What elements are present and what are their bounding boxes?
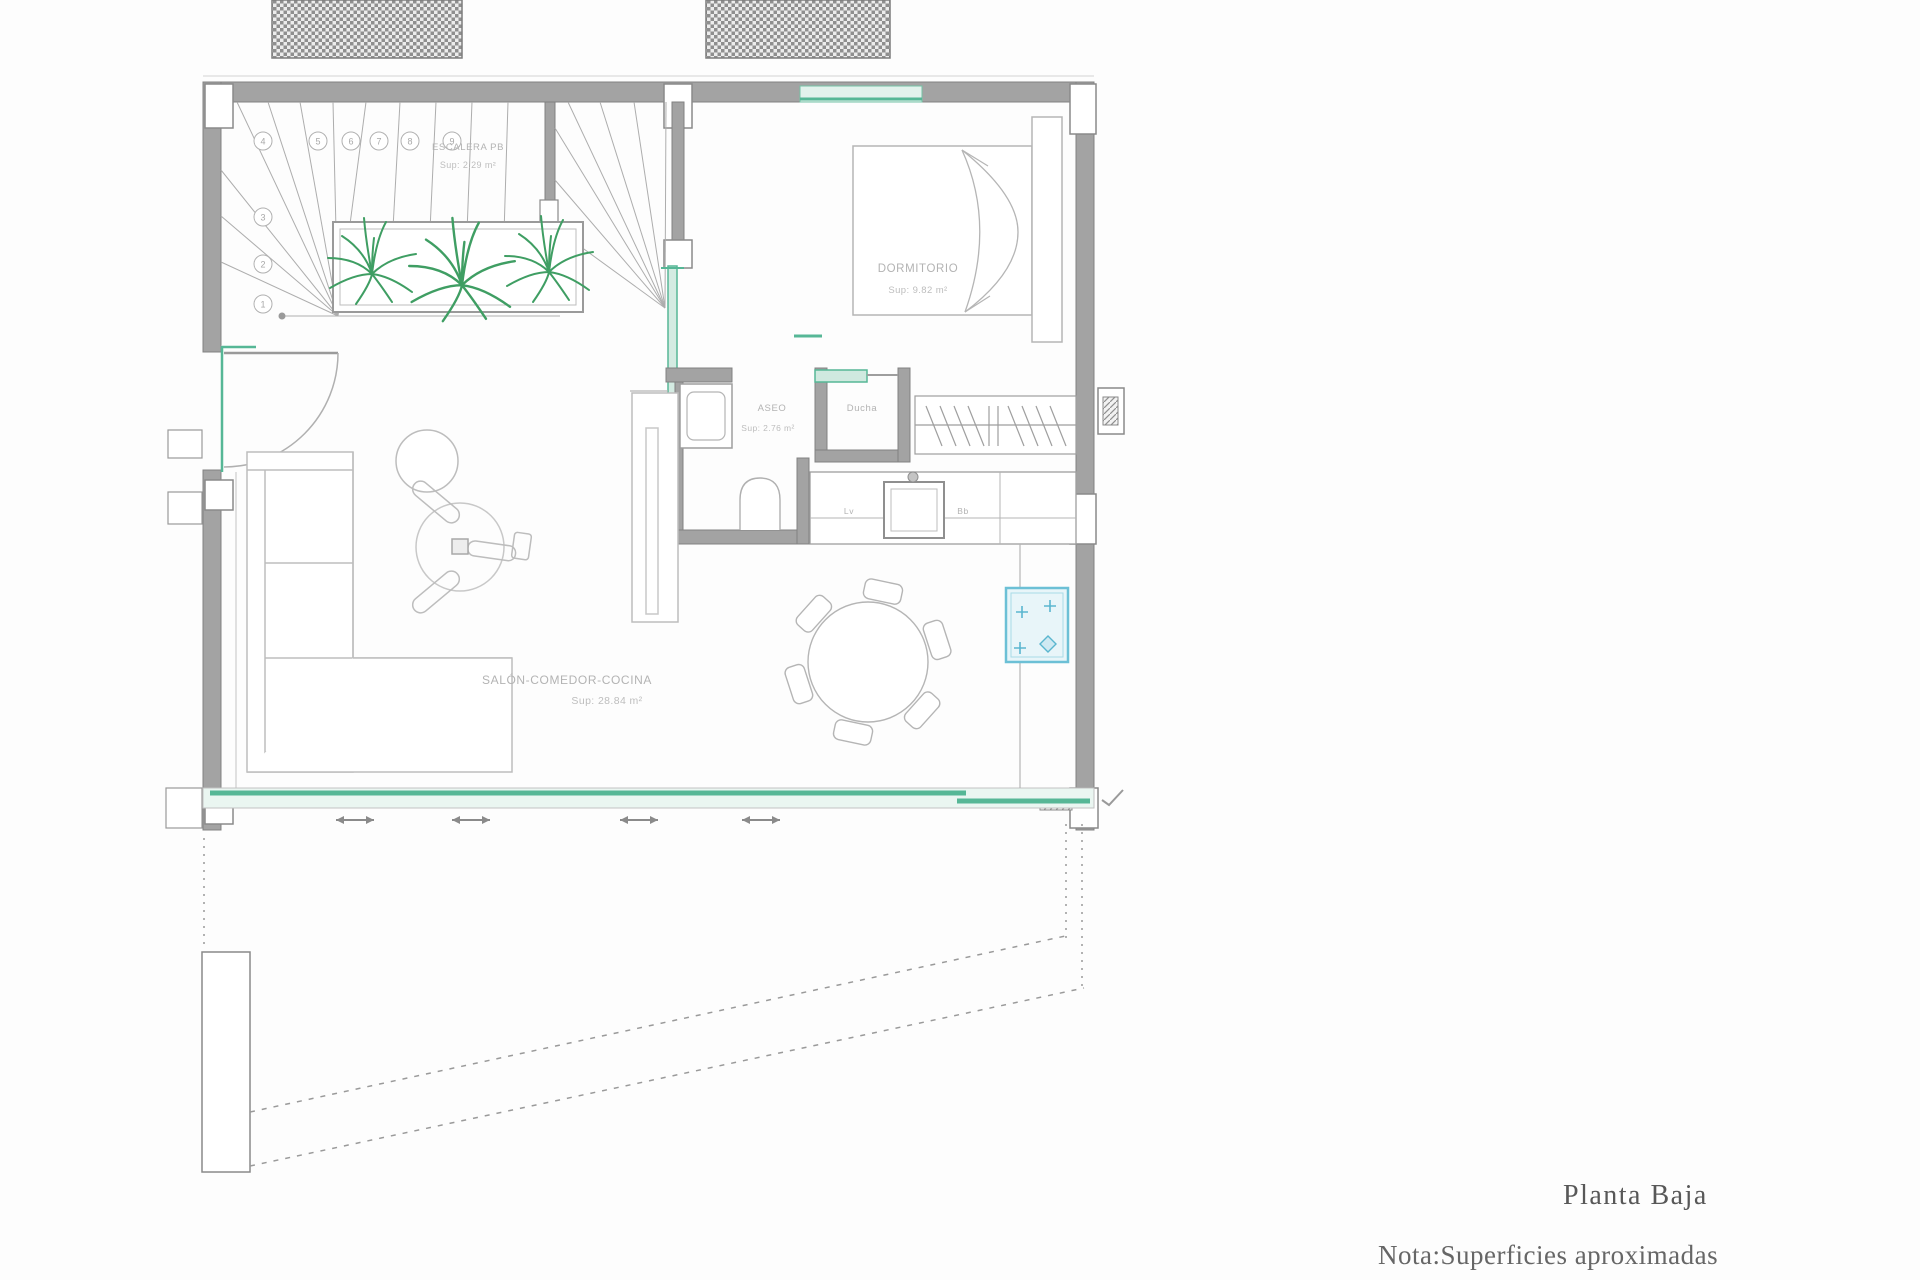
basin-top-wall xyxy=(666,368,732,382)
shower-screen-teal xyxy=(815,370,867,382)
svg-text:4: 4 xyxy=(260,137,265,147)
kitchen-lv-label: Lv xyxy=(844,506,854,516)
bathroom-bottom-wall xyxy=(675,530,809,544)
living-label: SALÓN-COMEDOR-COCINA xyxy=(482,672,652,687)
dim-arrow xyxy=(620,816,658,824)
sofa xyxy=(247,452,512,772)
step-bubble: 8 xyxy=(401,132,419,150)
top-wall xyxy=(203,82,1094,102)
dim-arrow xyxy=(336,816,374,824)
side-table xyxy=(396,430,458,492)
roof-hatch-blocks xyxy=(203,0,1094,76)
bedroom-area: Sup: 9.82 m² xyxy=(888,285,947,296)
dim-arrow xyxy=(452,816,490,824)
cooktop xyxy=(1006,588,1068,662)
step-bubble: 2 xyxy=(254,255,272,273)
plan-note: Nota:Superficies aproximadas xyxy=(1378,1240,1718,1271)
svg-text:6: 6 xyxy=(348,137,353,147)
stair-start-dot xyxy=(279,313,286,320)
bed-headboard xyxy=(1032,117,1062,342)
step-bubble: 7 xyxy=(370,132,388,150)
pier xyxy=(1070,84,1096,134)
bedroom: DORMITORIO Sup: 9.82 m² xyxy=(853,117,1076,454)
plan-title: Planta Baja xyxy=(1563,1180,1708,1212)
svg-text:2: 2 xyxy=(260,260,265,270)
svg-text:8: 8 xyxy=(407,137,412,147)
stairs-label: ESCALERA PB xyxy=(432,142,504,153)
step-bubble: 5 xyxy=(309,132,327,150)
exterior-pier xyxy=(168,492,202,524)
pier xyxy=(205,84,233,128)
kitchen-sink xyxy=(884,482,944,538)
floor-lamp xyxy=(409,478,531,616)
bedroom-label: DORMITORIO xyxy=(878,263,959,275)
floorplan-page: 4 5 6 7 8 9 3 2 1 ESCALERA PB Sup: 2.29 … xyxy=(0,0,1920,1280)
sideboard xyxy=(632,393,678,622)
dim-arrow xyxy=(742,816,780,824)
step-bubble: 6 xyxy=(342,132,360,150)
plot-boundary xyxy=(202,824,1084,1172)
plot-pier xyxy=(202,952,250,1172)
svg-text:5: 5 xyxy=(315,137,320,147)
bathroom-label: ASEO xyxy=(758,403,787,414)
check-mark-symbol xyxy=(1102,790,1123,805)
stairs-area: Sup: 2.29 m² xyxy=(440,160,496,170)
pier xyxy=(205,480,233,510)
bathroom-right-wall xyxy=(797,458,809,544)
step-bubble: 4 xyxy=(254,132,272,150)
svg-text:3: 3 xyxy=(260,213,265,223)
boundary-dashed-lower xyxy=(250,988,1084,1166)
kitchen-bb-label: Bb xyxy=(957,506,969,516)
hall-bedroom-partition xyxy=(672,102,684,242)
svg-text:1: 1 xyxy=(260,300,265,310)
door-swing-arc xyxy=(224,353,338,467)
floorplan-drawing: 4 5 6 7 8 9 3 2 1 ESCALERA PB Sup: 2.29 … xyxy=(0,0,1920,1280)
left-wall-lower xyxy=(203,470,221,830)
exterior-pier xyxy=(166,788,202,828)
shower-label: Ducha xyxy=(847,403,878,414)
boundary-dashed-upper xyxy=(250,935,1070,1112)
shower-bottom-wall xyxy=(815,450,910,462)
washbasin xyxy=(687,392,725,440)
chair xyxy=(862,578,903,605)
dimension-arrows xyxy=(336,816,780,824)
dining-table xyxy=(808,602,928,722)
living-room: SALÓN-COMEDOR-COCINA Sup: 28.84 m² xyxy=(247,393,678,772)
dining-set xyxy=(772,565,965,759)
shower-right-wall xyxy=(898,368,910,462)
meter-box-inner xyxy=(1103,397,1118,425)
faucet xyxy=(908,472,918,482)
pier xyxy=(664,240,692,268)
bathroom-area: Sup: 2.76 m² xyxy=(741,423,794,433)
svg-text:7: 7 xyxy=(376,137,381,147)
hatch-block-left xyxy=(272,0,462,58)
hatch-block-right xyxy=(706,0,890,58)
exterior-pier xyxy=(168,430,202,458)
chair xyxy=(832,719,873,746)
living-area: Sup: 28.84 m² xyxy=(571,695,642,707)
right-wall xyxy=(1076,82,1094,830)
wardrobe xyxy=(915,396,1076,454)
planter xyxy=(328,216,593,321)
toilet xyxy=(740,478,780,530)
step-bubble: 1 xyxy=(254,295,272,313)
step-bubble: 3 xyxy=(254,208,272,226)
